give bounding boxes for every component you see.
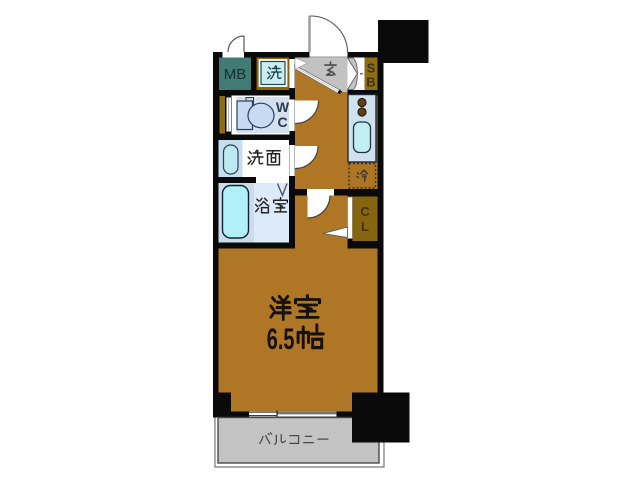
svg-text:L: L: [361, 219, 369, 234]
svg-text:MB: MB: [224, 66, 247, 83]
svg-text:W: W: [276, 99, 290, 115]
svg-text:S: S: [367, 61, 376, 76]
svg-text:C: C: [360, 204, 370, 219]
svg-text:C: C: [277, 114, 287, 130]
svg-text:B: B: [366, 75, 375, 90]
svg-text:6.5: 6.5: [267, 323, 295, 356]
